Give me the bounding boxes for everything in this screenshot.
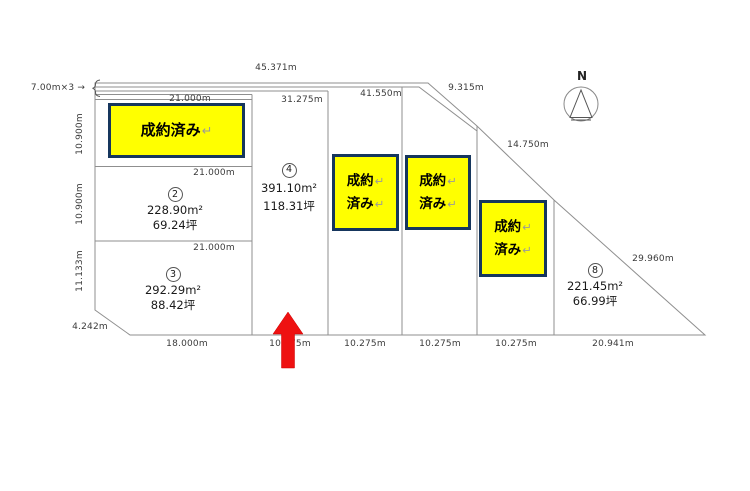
sold-text: 済み <box>494 242 521 258</box>
sold-text: 済み <box>347 196 374 212</box>
dim-bottom-plot6: 10.275m <box>419 339 461 349</box>
dim-road-note: 7.00m×3 → <box>31 83 85 93</box>
dim-plot3-frontage: 21.000m <box>193 243 235 253</box>
land-plot-diagram: 45.371m 41.550m 31.275m 21.000m 9.315m 1… <box>0 0 750 491</box>
dim-bottom-plot5: 10.275m <box>344 339 386 349</box>
sold-text: 成約 <box>494 219 521 235</box>
dim-corner-cut: 4.242m <box>72 322 108 332</box>
dim-bottom-plot7: 10.275m <box>495 339 537 349</box>
return-mark-icon: ↵ <box>375 174 385 188</box>
dim-left-lower: 11.133m <box>75 250 85 292</box>
return-mark-icon: ↵ <box>447 197 457 211</box>
return-mark-icon: ↵ <box>522 220 532 234</box>
plot8-number-badge: 8 <box>588 263 603 278</box>
plot8-area-sqm: 221.45m² <box>567 279 623 294</box>
return-mark-icon: ↵ <box>522 243 532 257</box>
plot2-area-sqm: 228.90m² <box>147 203 203 218</box>
dim-diagonal-ne: 9.315m <box>448 83 484 93</box>
dim-plot2-frontage: 21.000m <box>193 168 235 178</box>
plot4-label: 4 391.10m² 118.31坪 <box>261 159 317 215</box>
plot4-number-badge: 4 <box>282 163 297 178</box>
plot4-area-tsubo: 118.31坪 <box>261 197 317 215</box>
plot3-area-tsubo: 88.42坪 <box>145 298 201 313</box>
plot2-area-tsubo: 69.24坪 <box>147 218 203 233</box>
plot2-number-badge: 2 <box>168 187 183 202</box>
sold-text-line: 成約↵ <box>419 170 457 193</box>
dim-bottom-plot8: 20.941m <box>592 339 634 349</box>
sold-text-line: 成約済み↵ <box>141 118 213 144</box>
sold-overlay-plot1: 成約済み↵ <box>108 103 245 158</box>
plot8-label: 8 221.45m² 66.99坪 <box>567 262 623 309</box>
plot3-label: 3 292.29m² 88.42坪 <box>145 266 201 313</box>
sold-overlay-plot7: 成約↵ 済み↵ <box>479 200 547 277</box>
dim-left-upper: 10.900m <box>75 113 85 155</box>
return-mark-icon: ↵ <box>447 174 457 188</box>
sold-text-line: 済み↵ <box>419 193 457 216</box>
dim-bottom-plot3: 18.000m <box>166 339 208 349</box>
plot3-area-sqm: 292.29m² <box>145 283 201 298</box>
dim-top-inner: 41.550m <box>360 89 402 99</box>
sold-text-line: 済み↵ <box>494 239 532 262</box>
plot3-number-badge: 3 <box>166 267 181 282</box>
red-arrow-icon <box>270 310 306 370</box>
dim-top-total: 45.371m <box>255 63 297 73</box>
north-compass-icon <box>564 87 598 121</box>
dim-diagonal-mid: 14.750m <box>507 140 549 150</box>
sold-text: 済み <box>419 196 446 212</box>
sold-text: 成約済み <box>141 121 201 139</box>
dim-top-mid: 31.275m <box>281 95 323 105</box>
sold-overlay-plot5: 成約↵ 済み↵ <box>332 154 399 231</box>
sold-text: 成約 <box>419 173 446 189</box>
north-label: N <box>577 69 587 83</box>
sold-text-line: 成約↵ <box>347 170 385 193</box>
sold-text-line: 済み↵ <box>347 193 385 216</box>
sold-overlay-plot6: 成約↵ 済み↵ <box>405 155 471 230</box>
dim-left-middle: 10.900m <box>75 183 85 225</box>
parcel-lines-drawing <box>0 0 750 491</box>
return-mark-icon: ↵ <box>375 197 385 211</box>
sold-text-line: 成約↵ <box>494 216 532 239</box>
plot2-label: 2 228.90m² 69.24坪 <box>147 186 203 233</box>
plot8-area-tsubo: 66.99坪 <box>567 294 623 309</box>
dim-diagonal-se: 29.960m <box>632 254 674 264</box>
plot4-area-sqm: 391.10m² <box>261 179 317 197</box>
return-mark-icon: ↵ <box>202 124 213 139</box>
sold-text: 成約 <box>347 173 374 189</box>
